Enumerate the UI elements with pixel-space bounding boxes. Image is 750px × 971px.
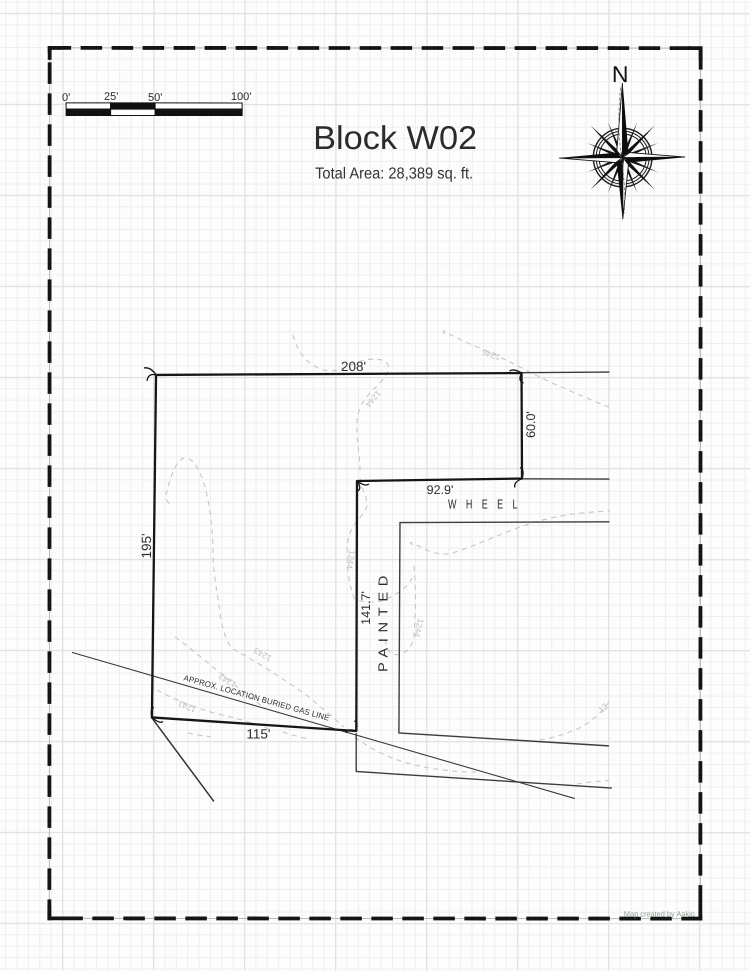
svg-text:W H E E L: W H E E L (448, 497, 521, 512)
svg-text:141.7': 141.7' (359, 591, 373, 625)
svg-text:25': 25' (104, 91, 118, 103)
svg-text:Block W02: Block W02 (313, 119, 477, 156)
svg-text:195': 195' (139, 533, 154, 558)
svg-text:Map created by Aakio: Map created by Aakio (624, 910, 696, 919)
svg-text:60.0': 60.0' (524, 411, 538, 438)
svg-text:92.9': 92.9' (427, 483, 454, 497)
svg-text:100': 100' (231, 91, 251, 103)
svg-text:50': 50' (148, 92, 162, 104)
svg-text:0': 0' (62, 92, 70, 104)
svg-text:PAINTED: PAINTED (375, 570, 390, 672)
svg-text:N: N (612, 61, 629, 87)
svg-text:115': 115' (246, 726, 270, 741)
svg-text:Total Area: 28,389 sq. ft.: Total Area: 28,389 sq. ft. (315, 165, 473, 182)
svg-text:208': 208' (341, 359, 366, 374)
